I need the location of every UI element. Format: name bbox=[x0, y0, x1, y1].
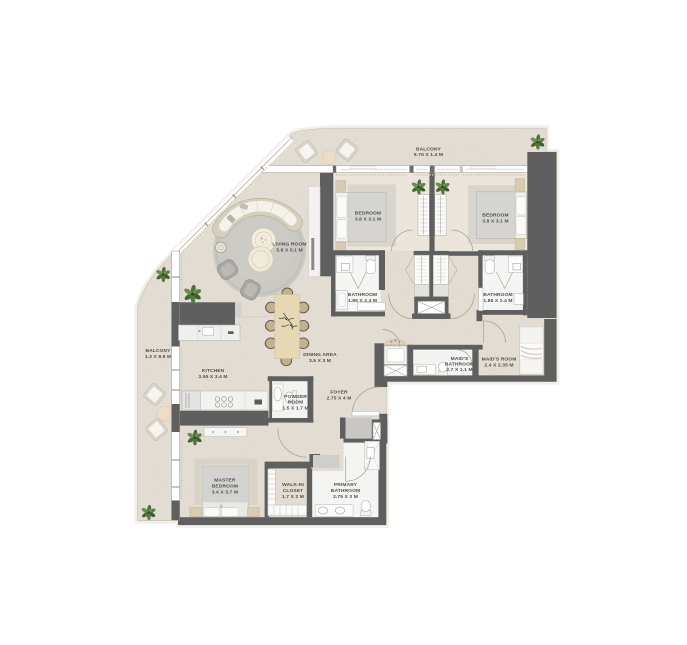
svg-text:1.85 X 2.4 M: 1.85 X 2.4 M bbox=[348, 298, 377, 304]
svg-text:1.5 X 1.7 M: 1.5 X 1.7 M bbox=[282, 405, 308, 411]
svg-text:1.7 X 2 M: 1.7 X 2 M bbox=[282, 494, 304, 500]
svg-text:PRIMARY: PRIMARY bbox=[334, 482, 358, 488]
svg-text:BATHROOM: BATHROOM bbox=[445, 362, 474, 368]
svg-text:3.55 X 3.4 M: 3.55 X 3.4 M bbox=[198, 374, 227, 380]
svg-text:LIVING ROOM: LIVING ROOM bbox=[272, 242, 306, 248]
svg-text:POWDER: POWDER bbox=[284, 394, 307, 400]
svg-text:2.75 X 4 M: 2.75 X 4 M bbox=[327, 396, 352, 402]
svg-text:BATHROOM: BATHROOM bbox=[483, 292, 512, 298]
svg-text:BALCONY: BALCONY bbox=[145, 348, 171, 354]
svg-text:BEDROOM: BEDROOM bbox=[212, 484, 238, 490]
svg-text:1.3 X 9.9 M: 1.3 X 9.9 M bbox=[145, 354, 171, 360]
svg-text:MAID'S: MAID'S bbox=[451, 356, 469, 362]
svg-text:1.85 X 2.4 M: 1.85 X 2.4 M bbox=[483, 298, 512, 304]
svg-text:WALK-IN: WALK-IN bbox=[282, 482, 304, 488]
svg-text:9.75 X 1.4 M: 9.75 X 1.4 M bbox=[414, 152, 443, 158]
svg-text:3.8 X 3.1 M: 3.8 X 3.1 M bbox=[482, 218, 508, 224]
svg-text:ROOM: ROOM bbox=[288, 400, 304, 406]
svg-text:3.5 X 3 M: 3.5 X 3 M bbox=[309, 358, 331, 364]
svg-text:2.7 X 1.1 M: 2.7 X 1.1 M bbox=[446, 367, 472, 373]
svg-text:DINING AREA: DINING AREA bbox=[303, 352, 337, 358]
svg-text:CLOSET: CLOSET bbox=[283, 488, 304, 494]
svg-text:MASTER: MASTER bbox=[214, 478, 236, 484]
svg-text:3.4 X 3.7 M: 3.4 X 3.7 M bbox=[212, 490, 238, 496]
svg-text:BEDROOM: BEDROOM bbox=[355, 210, 381, 216]
svg-text:2.75 X 3 M: 2.75 X 3 M bbox=[333, 494, 358, 500]
svg-text:2.4 X 2.35 M: 2.4 X 2.35 M bbox=[484, 362, 513, 368]
svg-text:5.8 X 5.1 M: 5.8 X 5.1 M bbox=[276, 248, 302, 254]
svg-text:FOYER: FOYER bbox=[330, 390, 348, 396]
svg-text:BATHROOM: BATHROOM bbox=[331, 488, 360, 494]
svg-text:BATHROOM: BATHROOM bbox=[348, 292, 377, 298]
svg-text:BALCONY: BALCONY bbox=[416, 146, 442, 152]
svg-text:3.8 X 3.1 M: 3.8 X 3.1 M bbox=[355, 216, 381, 222]
svg-text:BEDROOM: BEDROOM bbox=[482, 212, 508, 218]
svg-text:MAID'S ROOM: MAID'S ROOM bbox=[482, 357, 517, 363]
svg-text:KITCHEN: KITCHEN bbox=[202, 368, 225, 374]
